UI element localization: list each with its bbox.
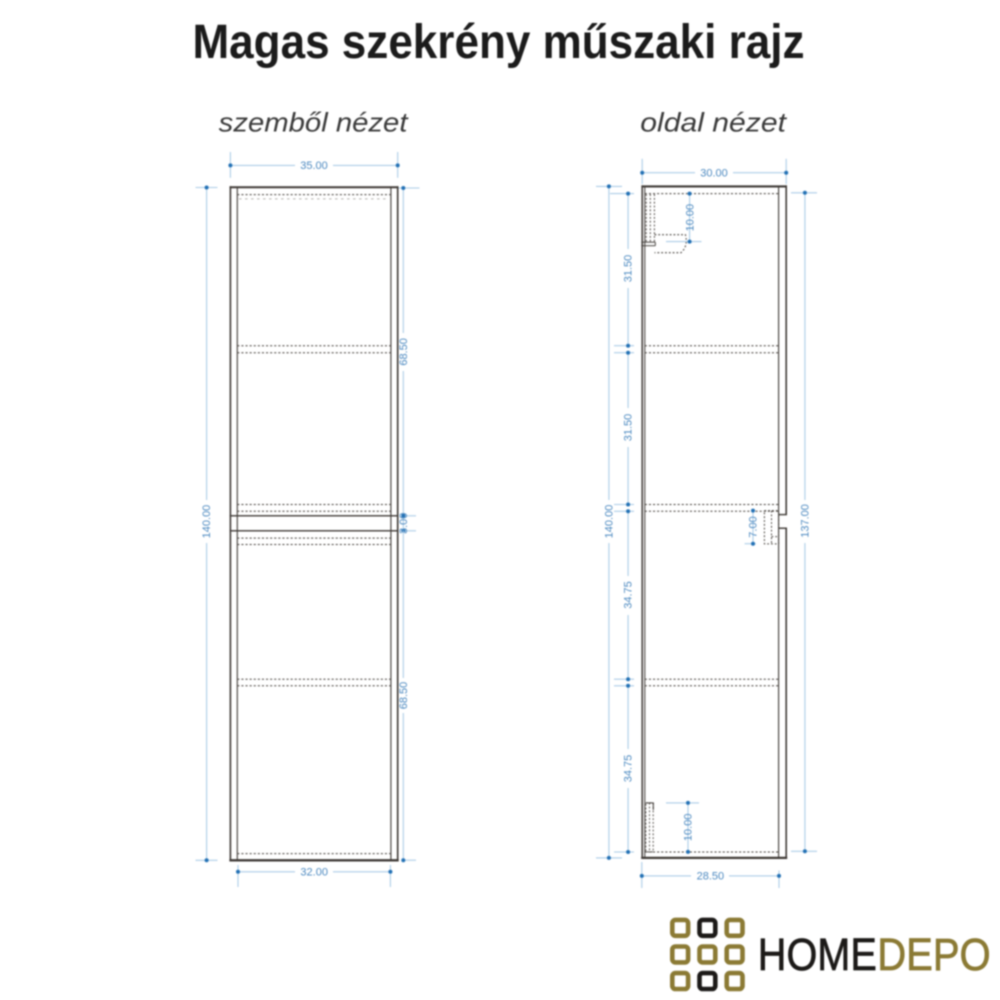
svg-text:30.00: 30.00 <box>700 168 728 180</box>
svg-text:140.00: 140.00 <box>201 505 213 539</box>
svg-text:7.00: 7.00 <box>748 516 760 537</box>
svg-text:3.00: 3.00 <box>398 513 410 534</box>
svg-text:Magas szekrény műszaki rajz: Magas szekrény műszaki rajz <box>193 16 805 69</box>
svg-text:31.50: 31.50 <box>623 414 635 442</box>
svg-text:DEPO: DEPO <box>877 929 991 980</box>
svg-text:31.50: 31.50 <box>623 255 635 283</box>
svg-text:68.50: 68.50 <box>398 682 410 710</box>
svg-text:34.75: 34.75 <box>623 755 635 783</box>
svg-text:35.00: 35.00 <box>300 160 328 172</box>
svg-text:137.00: 137.00 <box>800 504 812 538</box>
svg-text:140.00: 140.00 <box>604 505 616 539</box>
svg-text:32.00: 32.00 <box>300 867 328 879</box>
svg-text:68.50: 68.50 <box>398 338 410 366</box>
svg-text:10.00: 10.00 <box>684 204 696 232</box>
svg-text:HOME: HOME <box>758 929 877 980</box>
svg-text:10.00: 10.00 <box>683 814 695 842</box>
svg-text:34.75: 34.75 <box>623 581 635 609</box>
svg-text:szemből nézet: szemből nézet <box>219 108 409 138</box>
svg-text:28.50: 28.50 <box>697 871 725 883</box>
svg-text:oldal nézet: oldal nézet <box>640 108 787 138</box>
